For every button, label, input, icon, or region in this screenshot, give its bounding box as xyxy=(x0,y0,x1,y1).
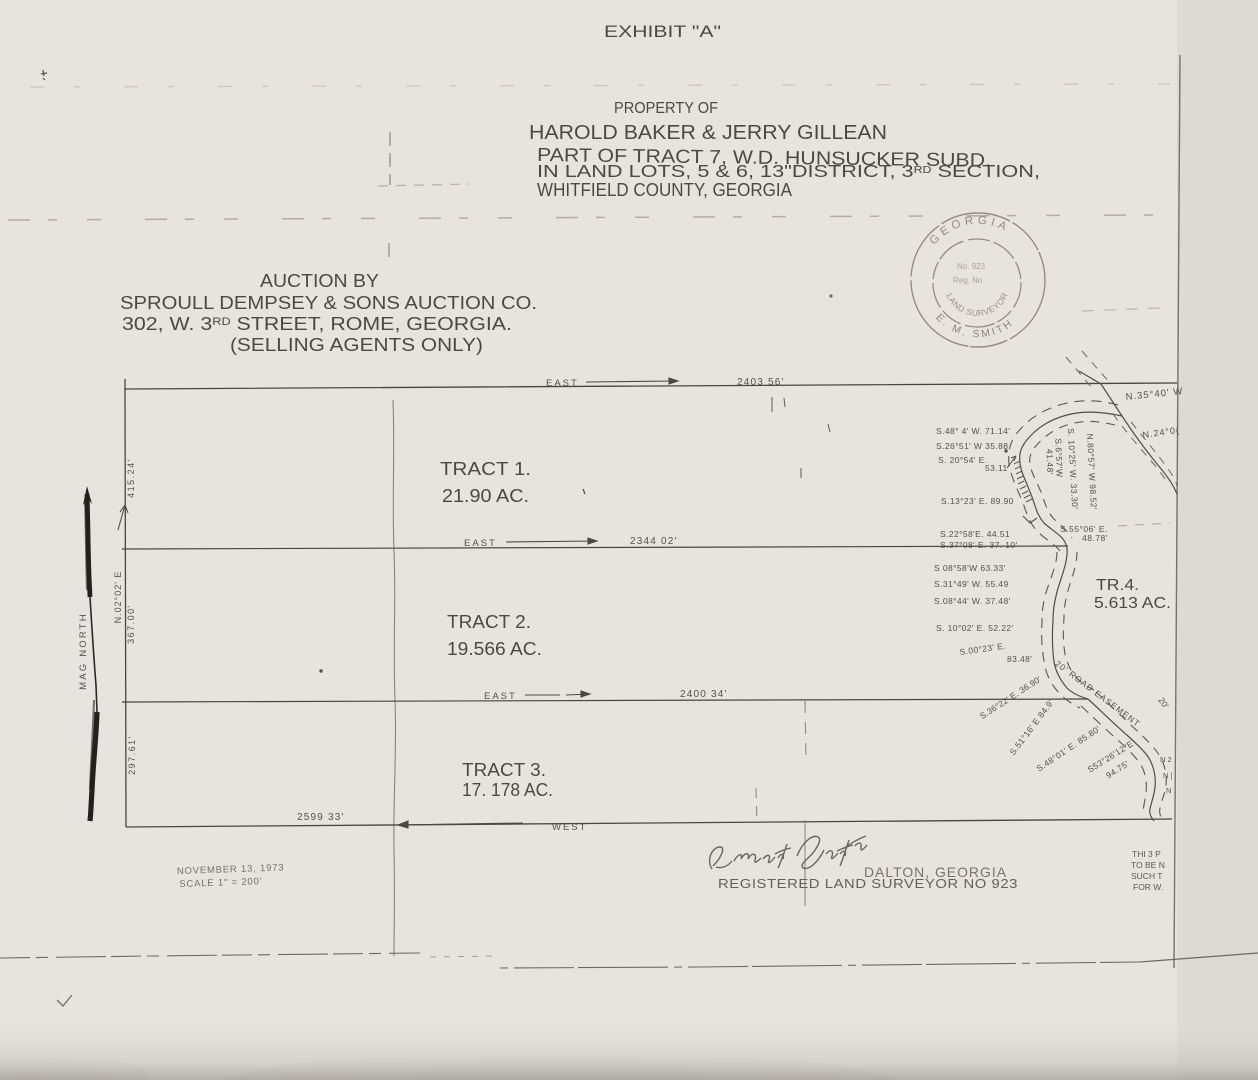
svg-text:S.26°51' W 35.88: S.26°51' W 35.88 xyxy=(936,441,1008,451)
svg-text:EXHIBIT "A": EXHIBIT "A" xyxy=(604,22,721,41)
svg-text:S.22°58'E. 44.51: S.22°58'E. 44.51 xyxy=(940,529,1010,539)
svg-text:S.08°44' W. 37.48': S.08°44' W. 37.48' xyxy=(934,596,1011,606)
svg-text:THI 3 P: THI 3 P xyxy=(1132,849,1161,859)
svg-text:41.48': 41.48' xyxy=(1045,449,1056,475)
svg-text:TRACT 3.: TRACT 3. xyxy=(462,760,546,780)
svg-text:S 08°58'W 63.33': S 08°58'W 63.33' xyxy=(934,563,1006,573)
svg-text:AUCTION BY: AUCTION BY xyxy=(260,270,379,291)
svg-text:N 2: N 2 xyxy=(1160,755,1172,764)
svg-text:S.37°08' E. 37. 10': S.37°08' E. 37. 10' xyxy=(940,540,1018,550)
svg-text:48.78': 48.78' xyxy=(1082,533,1108,543)
svg-text:(SELLING AGENTS ONLY): (SELLING AGENTS ONLY) xyxy=(230,334,483,355)
svg-text:EAST: EAST xyxy=(484,691,517,702)
svg-text:S.48° 4' W. 71.14': S.48° 4' W. 71.14' xyxy=(936,426,1010,436)
svg-text:HAROLD BAKER & JERRY GILLEAN: HAROLD BAKER & JERRY GILLEAN xyxy=(529,122,887,144)
svg-text:53.11': 53.11' xyxy=(985,463,1010,473)
svg-text:PROPERTY OF: PROPERTY OF xyxy=(614,100,718,117)
svg-text:S.13°23' E. 89.90: S.13°23' E. 89.90 xyxy=(941,496,1014,506)
svg-text:SUCH T: SUCH T xyxy=(1131,871,1163,881)
svg-text:N |: N | xyxy=(1163,771,1173,780)
svg-text:21.90 AC.: 21.90 AC. xyxy=(442,486,529,506)
svg-text:Reg. No: Reg. No xyxy=(953,276,983,285)
svg-text:2344 02': 2344 02' xyxy=(630,536,678,547)
svg-text:IN LAND LOTS, 5 & 6, 13"DISTRI: IN LAND LOTS, 5 & 6, 13"DISTRICT, 3RD SE… xyxy=(537,161,1040,181)
svg-text:S.31°49' W. 55.49: S.31°49' W. 55.49 xyxy=(934,579,1009,589)
svg-text:TR.4.: TR.4. xyxy=(1096,577,1139,594)
svg-text:297.61': 297.61' xyxy=(127,735,137,775)
svg-text:TRACT 1.: TRACT 1. xyxy=(440,459,531,479)
svg-text:2403 56': 2403 56' xyxy=(737,377,785,388)
svg-text:302, W. 3RD STREET, ROME, GEO: 302, W. 3RD STREET, ROME, GEORGIA. xyxy=(122,313,512,334)
svg-text:17. 178 AC.: 17. 178 AC. xyxy=(462,780,553,800)
svg-text:MAG NORTH: MAG NORTH xyxy=(78,612,89,690)
svg-text:No. 923: No. 923 xyxy=(957,262,986,271)
svg-text:WHITFIELD COUNTY, GEORGIA: WHITFIELD COUNTY, GEORGIA xyxy=(537,180,792,200)
svg-text:EAST: EAST xyxy=(546,378,579,389)
svg-text:367.00': 367.00' xyxy=(126,604,136,644)
svg-text:N.02°02' E: N.02°02' E xyxy=(113,571,123,624)
svg-text:83.48': 83.48' xyxy=(1007,654,1032,664)
svg-text:2599 33': 2599 33' xyxy=(297,812,345,823)
svg-text:TO BE N: TO BE N xyxy=(1131,860,1165,870)
svg-text:REGISTERED LAND SURVEYOR NO 9: REGISTERED LAND SURVEYOR NO 923 xyxy=(718,876,1018,891)
svg-text:S. 10°02' E. 52.22': S. 10°02' E. 52.22' xyxy=(936,623,1014,633)
svg-text:2400 34': 2400 34' xyxy=(680,689,728,700)
svg-text:5.613 AC.: 5.613 AC. xyxy=(1094,595,1171,612)
svg-text:FOR W.: FOR W. xyxy=(1133,882,1163,892)
svg-text:EAST: EAST xyxy=(464,538,497,549)
svg-text:WEST: WEST xyxy=(552,822,587,833)
svg-text:N: N xyxy=(1166,786,1171,795)
svg-text:TRACT 2.: TRACT 2. xyxy=(447,612,531,632)
svg-text:SPROULL DEMPSEY & SONS AUCTION: SPROULL DEMPSEY & SONS AUCTION CO. xyxy=(120,292,537,313)
svg-text:S. 20°54' E.: S. 20°54' E. xyxy=(938,455,988,465)
svg-text:19.566 AC.: 19.566 AC. xyxy=(447,639,542,659)
svg-text:415.24': 415.24' xyxy=(126,458,136,498)
